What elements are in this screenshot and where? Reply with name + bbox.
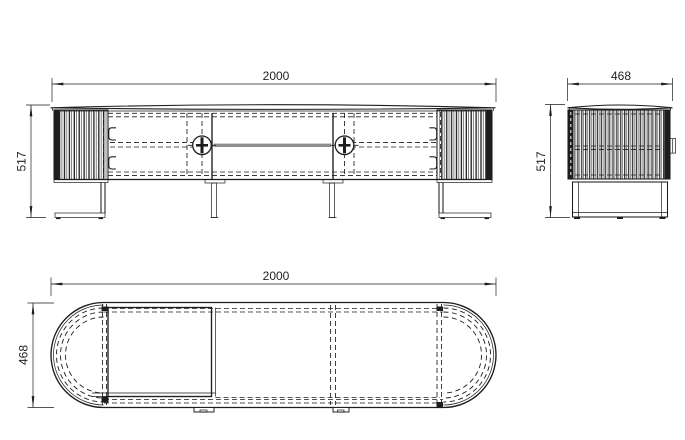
joint-block [437,402,444,408]
foot-pad [441,218,446,220]
top-panel-edge [568,105,673,109]
side-view: 468 517 [534,69,676,219]
hinge-icon [430,157,437,169]
right-sled-leg-post [439,183,443,214]
joint-block [102,307,109,312]
front-right-door[interactable] [430,110,493,183]
left-sled-leg-post [101,183,105,214]
middle-leg-post [212,183,217,218]
side-handle[interactable] [670,139,676,154]
top-width-label: 2000 [263,269,290,283]
joint-block [437,307,444,312]
left-sled-leg-foot [55,213,105,218]
side-width-dimension: 468 [568,69,673,101]
base-outline [573,182,668,217]
top-compartment [92,307,443,408]
side-base-frame [573,182,668,219]
hinge-icon [109,157,116,169]
body-edge-fill [665,110,671,179]
side-height-dimension: 517 [534,105,570,218]
side-width-label: 468 [611,69,631,83]
top-width-dimension: 2000 [51,269,496,296]
foot-pad [617,217,623,219]
top-leg-tabs [194,408,349,413]
side-height-label: 517 [534,151,548,171]
top-depth-dimension: 468 [17,303,55,408]
foot-pad [99,218,104,220]
door-flutes [439,110,487,180]
front-width-label: 2000 [263,69,290,83]
hinge-icon [109,128,116,140]
front-view: 2000 517 [15,69,497,219]
body-flutes [574,110,665,179]
front-height-dimension: 517 [15,105,51,218]
foot-pad [485,218,490,220]
door-flutes [60,110,109,180]
compartment-outline [108,308,212,397]
door-edge-fill [54,110,60,180]
middle-leg-post [330,183,335,218]
hidden-top-lines [108,113,437,117]
hinge-icon [430,128,437,140]
hidden-bottom-lines [108,172,437,176]
foot-pad [574,217,580,219]
top-panel-edge [51,105,496,110]
right-sled-leg-foot [439,213,491,218]
front-top-panel [51,105,496,111]
front-height-label: 517 [15,151,29,171]
top-view: 2000 468 [17,269,497,412]
top-outline [51,303,496,408]
base-inner-lines [573,182,668,217]
top-hidden-lines [103,304,444,406]
joint-block [102,397,109,403]
curved-door-hidden-arcs [57,308,491,402]
top-depth-label: 468 [17,345,31,365]
foot-pad [56,218,61,220]
side-body [568,110,676,179]
front-legs [55,180,491,220]
technical-drawing-tv-stand: 2000 517 [0,0,685,440]
door-edge-fill [487,110,493,180]
front-width-dimension: 2000 [52,69,496,102]
front-left-door[interactable] [54,110,116,183]
shelf-bar [214,144,332,147]
foot-pad [660,217,666,219]
